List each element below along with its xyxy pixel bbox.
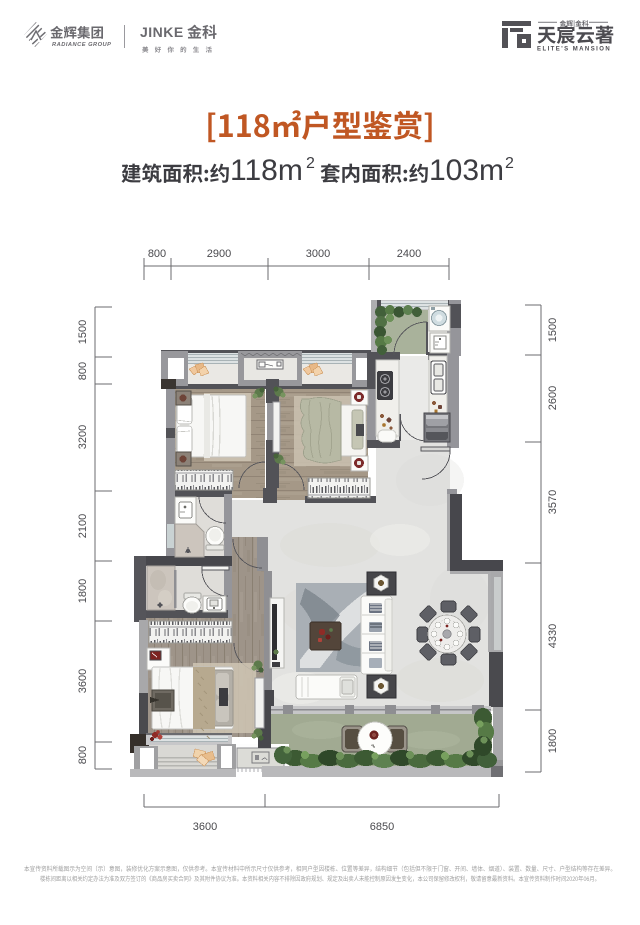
svg-text:2100: 2100	[77, 514, 89, 538]
svg-text:800: 800	[77, 362, 89, 380]
svg-text:2600: 2600	[547, 386, 559, 410]
svg-text:1800: 1800	[547, 729, 559, 753]
svg-text:3200: 3200	[77, 425, 89, 449]
svg-text:本宣传资料所载图示为空间（示）意图，装修优化方案示意图，仅供: 本宣传资料所载图示为空间（示）意图，装修优化方案示意图，仅供参考。本宣传材料中所…	[24, 865, 616, 873]
svg-text:6850: 6850	[370, 821, 394, 833]
svg-text:3570: 3570	[547, 490, 559, 514]
svg-text:2900: 2900	[207, 248, 231, 260]
svg-text:2400: 2400	[397, 248, 421, 260]
svg-text:1500: 1500	[547, 318, 559, 342]
svg-text:1800: 1800	[77, 579, 89, 603]
svg-text:800: 800	[77, 746, 89, 764]
svg-text:3600: 3600	[193, 821, 217, 833]
svg-text:800: 800	[148, 248, 166, 260]
svg-text:3000: 3000	[306, 248, 330, 260]
svg-text:4330: 4330	[547, 624, 559, 648]
svg-text:楼栋间距离以相关约定办法为准及双方签订的《商品房买卖合同》及: 楼栋间距离以相关约定办法为准及双方签订的《商品房买卖合同》及其附件协议为准。本资…	[40, 875, 600, 883]
svg-text:3600: 3600	[77, 669, 89, 693]
svg-text:1500: 1500	[77, 320, 89, 344]
